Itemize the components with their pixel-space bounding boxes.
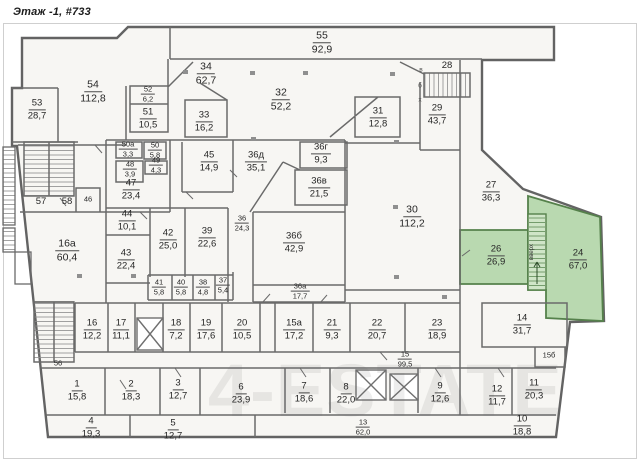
room-label-15a: 15а17,2 bbox=[283, 318, 305, 341]
room-area: 18,9 bbox=[428, 330, 447, 342]
room-label-5: 512,7 bbox=[164, 418, 183, 441]
room-area: 10,1 bbox=[118, 221, 137, 233]
room-area: 12,6 bbox=[431, 393, 450, 405]
room-area: 19,3 bbox=[82, 428, 101, 440]
floor-plan-drawing bbox=[0, 0, 640, 473]
room-number: 48 bbox=[123, 161, 137, 170]
room-area: 20,7 bbox=[368, 330, 387, 342]
room-number: 54 bbox=[84, 79, 102, 92]
room-area: 23,9 bbox=[232, 394, 251, 406]
room-area: 22,6 bbox=[198, 238, 217, 250]
room-label-43: 4322,4 bbox=[117, 248, 136, 271]
room-label-7: 718,6 bbox=[295, 381, 314, 404]
room-label-47: 4723,4 bbox=[122, 178, 141, 201]
annotation-b: б bbox=[418, 83, 422, 90]
room-label-1: 115,8 bbox=[68, 379, 87, 402]
room-area: 62,0 bbox=[356, 428, 371, 437]
room-number: 27 bbox=[483, 180, 500, 192]
room-area: 11,7 bbox=[488, 396, 506, 408]
room-label-39: 3922,6 bbox=[198, 226, 217, 249]
room-area: 35,1 bbox=[247, 162, 266, 174]
room-label-24: 2467,0 bbox=[569, 248, 588, 271]
staircase bbox=[24, 142, 74, 196]
room-number: 44 bbox=[119, 209, 136, 221]
room-area: 17,6 bbox=[197, 330, 216, 342]
room-label-21: 219,3 bbox=[324, 318, 341, 341]
room-number: 5 bbox=[167, 418, 178, 430]
room-number: 36а bbox=[291, 283, 310, 292]
room-label-58: 58 bbox=[62, 197, 73, 209]
room-area: 9,3 bbox=[325, 330, 338, 342]
room-label-14: 1431,7 bbox=[513, 313, 532, 336]
room-label-45: 4514,9 bbox=[200, 150, 219, 173]
room-area: 22,4 bbox=[117, 260, 136, 272]
room-area: 92,9 bbox=[312, 43, 332, 56]
room-number: 23 bbox=[429, 318, 446, 330]
room-label-53: 5328,7 bbox=[28, 98, 47, 121]
room-area: 25,0 bbox=[159, 240, 178, 252]
room-label-18: 187,2 bbox=[168, 318, 185, 341]
room-label-50a: 50а3,3 bbox=[119, 141, 138, 160]
room-label-29: 2943,7 bbox=[428, 103, 447, 126]
room-label-12: 1211,7 bbox=[488, 384, 506, 407]
stairs-up-label: вверх bbox=[529, 244, 535, 260]
room-number: 17 bbox=[113, 318, 130, 330]
room-area: 67,0 bbox=[569, 260, 588, 272]
room-number: 38 bbox=[196, 279, 210, 288]
room-label-10: 1018,8 bbox=[513, 414, 532, 437]
annotation-v: в bbox=[419, 67, 422, 74]
room-area: 99,5 bbox=[398, 360, 413, 369]
room-area: 24,3 bbox=[235, 224, 250, 233]
room-label-15b: 15б bbox=[543, 351, 556, 360]
room-area: 52,2 bbox=[271, 100, 291, 113]
room-label-57: 57 bbox=[36, 197, 47, 209]
room-area: 18,3 bbox=[122, 391, 141, 403]
room-number: 34 bbox=[197, 61, 215, 74]
room-area: 11,1 bbox=[112, 330, 130, 342]
room-number: 56 bbox=[54, 359, 62, 367]
room-label-32: 3252,2 bbox=[271, 87, 291, 113]
room-label-36b: 36б42,9 bbox=[283, 231, 305, 254]
room-number: 1 bbox=[71, 379, 82, 391]
room-number: 16а bbox=[55, 238, 79, 251]
room-label-33: 3316,2 bbox=[195, 110, 214, 133]
room-label-22: 2220,7 bbox=[368, 318, 387, 341]
room-label-34: 3462,7 bbox=[196, 61, 216, 87]
room-label-56: 56 bbox=[54, 359, 62, 368]
room-number: 21 bbox=[324, 318, 341, 330]
room-number: 46 bbox=[84, 195, 92, 203]
room-label-38: 384,8 bbox=[196, 279, 210, 298]
room-number: 16 bbox=[84, 318, 101, 330]
room-number: 53 bbox=[29, 98, 46, 110]
room-label-9: 912,6 bbox=[431, 381, 450, 404]
room-number: 49 bbox=[149, 157, 163, 166]
room-area: 5,8 bbox=[154, 288, 164, 297]
room-number: 50а bbox=[119, 141, 138, 150]
room-area: 15,8 bbox=[68, 391, 87, 403]
room-area: 18,8 bbox=[513, 426, 532, 438]
room-number: 15б bbox=[543, 351, 556, 359]
room-area: 12,7 bbox=[169, 390, 188, 402]
room-area: 20,3 bbox=[525, 390, 544, 402]
room-number: 36б bbox=[283, 231, 305, 243]
annotation-x: х bbox=[418, 97, 421, 104]
room-label-36d: 36д35,1 bbox=[245, 150, 267, 173]
room-label-36a: 36а17,7 bbox=[291, 283, 310, 302]
room-label-26: 2626,9 bbox=[487, 244, 506, 267]
room-label-11: 1120,3 bbox=[525, 378, 544, 401]
room-area: 17,2 bbox=[285, 330, 304, 342]
room-number: 33 bbox=[196, 110, 213, 122]
room-label-36: 3624,3 bbox=[235, 215, 250, 234]
room-label-41: 415,8 bbox=[152, 279, 166, 298]
room-label-19: 1917,6 bbox=[197, 318, 216, 341]
room-label-8: 822,0 bbox=[337, 382, 356, 405]
room-area: 23,4 bbox=[122, 190, 141, 202]
room-number: 8 bbox=[340, 382, 351, 394]
room-number: 32 bbox=[272, 87, 290, 100]
room-area: 5,4 bbox=[218, 286, 228, 295]
room-label-31: 3112,8 bbox=[369, 106, 388, 129]
room-number: 47 bbox=[123, 178, 140, 190]
room-area: 60,4 bbox=[57, 251, 77, 264]
room-area: 26,9 bbox=[487, 256, 506, 268]
room-label-37: 375,4 bbox=[216, 277, 230, 296]
room-number: 4 bbox=[85, 416, 96, 428]
room-number: 29 bbox=[429, 103, 446, 115]
room-number: 36д bbox=[245, 150, 267, 162]
room-area: 14,9 bbox=[200, 162, 219, 174]
room-number: 36 bbox=[235, 215, 249, 224]
room-label-54: 54112,8 bbox=[80, 79, 106, 105]
room-area: 112,8 bbox=[80, 92, 106, 105]
room-area: 9,3 bbox=[314, 154, 327, 166]
room-area: 12,7 bbox=[164, 430, 183, 442]
room-number: 43 bbox=[118, 248, 135, 260]
room-label-4: 419,3 bbox=[82, 416, 101, 439]
room-number: 28 bbox=[442, 61, 453, 72]
room-number: 37 bbox=[216, 277, 230, 286]
room-label-17: 1711,1 bbox=[112, 318, 130, 341]
room-label-2: 218,3 bbox=[122, 379, 141, 402]
room-area: 18,6 bbox=[295, 393, 314, 405]
room-label-16a: 16а60,4 bbox=[55, 238, 79, 264]
page-title: Этаж -1, #733 bbox=[13, 6, 91, 18]
room-area: 42,9 bbox=[285, 243, 304, 255]
room-area: 4,3 bbox=[151, 166, 161, 175]
room-label-51: 5110,5 bbox=[139, 107, 158, 130]
room-label-36g: 36г9,3 bbox=[311, 142, 331, 165]
floor-plan: 4-ESTATE Этаж -1, #733 5592,9 3462,7 28 … bbox=[0, 0, 640, 473]
room-label-36v: 36в21,5 bbox=[308, 176, 330, 199]
room-area: 62,7 bbox=[196, 74, 216, 87]
room-area: 10,5 bbox=[139, 119, 158, 131]
staircase bbox=[424, 73, 470, 97]
room-number: 6 bbox=[235, 382, 246, 394]
room-area: 12,8 bbox=[369, 118, 388, 130]
room-number: 30 bbox=[403, 204, 421, 217]
room-number: 36в bbox=[308, 176, 330, 188]
room-area: 10,5 bbox=[233, 330, 252, 342]
room-number: 58 bbox=[62, 197, 73, 208]
room-number: 20 bbox=[234, 318, 251, 330]
room-number: 12 bbox=[489, 384, 506, 396]
room-number: 40 bbox=[174, 279, 188, 288]
room-number: 3 bbox=[172, 378, 183, 390]
room-area: 3,3 bbox=[123, 150, 133, 159]
room-number: 57 bbox=[36, 197, 47, 208]
room-number: 39 bbox=[199, 226, 216, 238]
room-number: 31 bbox=[370, 106, 387, 118]
room-label-27: 2736,3 bbox=[482, 180, 501, 203]
room-area: 28,7 bbox=[28, 110, 47, 122]
room-area: 6,2 bbox=[143, 95, 153, 104]
room-area: 4,8 bbox=[198, 288, 208, 297]
room-label-30: 30112,2 bbox=[399, 204, 425, 230]
room-area: 21,5 bbox=[310, 188, 329, 200]
room-area: 36,3 bbox=[482, 192, 501, 204]
room-label-28: 28 bbox=[442, 61, 453, 73]
staircase bbox=[34, 302, 74, 362]
room-label-52: 526,2 bbox=[141, 86, 155, 105]
room-area: 43,7 bbox=[428, 115, 447, 127]
room-number: 36г bbox=[311, 142, 331, 154]
room-area: 5,8 bbox=[176, 288, 186, 297]
room-number: 10 bbox=[514, 414, 531, 426]
room-label-23: 2318,9 bbox=[428, 318, 447, 341]
room-number: 7 bbox=[298, 381, 309, 393]
room-label-15: 1599,5 bbox=[398, 351, 413, 370]
room-number: 11 bbox=[526, 378, 542, 390]
room-number: 45 bbox=[201, 150, 218, 162]
room-label-3: 312,7 bbox=[169, 378, 188, 401]
room-number: 41 bbox=[152, 279, 166, 288]
room-number: 15а bbox=[283, 318, 305, 330]
room-number: 15 bbox=[398, 351, 412, 360]
room-number: 50 bbox=[148, 142, 162, 151]
room-number: 24 bbox=[570, 248, 587, 260]
room-number: 13 bbox=[356, 419, 370, 428]
room-label-16: 1612,2 bbox=[83, 318, 102, 341]
room-number: 9 bbox=[434, 381, 445, 393]
room-number: 18 bbox=[168, 318, 185, 330]
room-label-55: 5592,9 bbox=[312, 30, 332, 56]
room-number: 14 bbox=[514, 313, 531, 325]
room-area: 16,2 bbox=[195, 122, 214, 134]
room-label-20: 2010,5 bbox=[233, 318, 252, 341]
room-label-44: 4410,1 bbox=[118, 209, 137, 232]
room-label-13: 1362,0 bbox=[356, 419, 371, 438]
room-number: 55 bbox=[313, 30, 331, 43]
room-area: 112,2 bbox=[399, 217, 425, 230]
room-number: 2 bbox=[125, 379, 136, 391]
room-area: 7,2 bbox=[169, 330, 182, 342]
room-label-49: 494,3 bbox=[149, 157, 163, 176]
room-number: 42 bbox=[160, 228, 177, 240]
room-label-6: 623,9 bbox=[232, 382, 251, 405]
room-number: 26 bbox=[488, 244, 505, 256]
room-area: 22,0 bbox=[337, 394, 356, 406]
room-label-46: 46 bbox=[84, 195, 92, 204]
room-number: 19 bbox=[198, 318, 215, 330]
room-area: 17,7 bbox=[293, 292, 308, 301]
room-number: 51 bbox=[140, 107, 157, 119]
room-area: 31,7 bbox=[513, 325, 532, 337]
room-number: 22 bbox=[369, 318, 386, 330]
room-label-42: 4225,0 bbox=[159, 228, 178, 251]
room-area: 12,2 bbox=[83, 330, 102, 342]
room-number: 52 bbox=[141, 86, 155, 95]
room-label-40: 405,8 bbox=[174, 279, 188, 298]
